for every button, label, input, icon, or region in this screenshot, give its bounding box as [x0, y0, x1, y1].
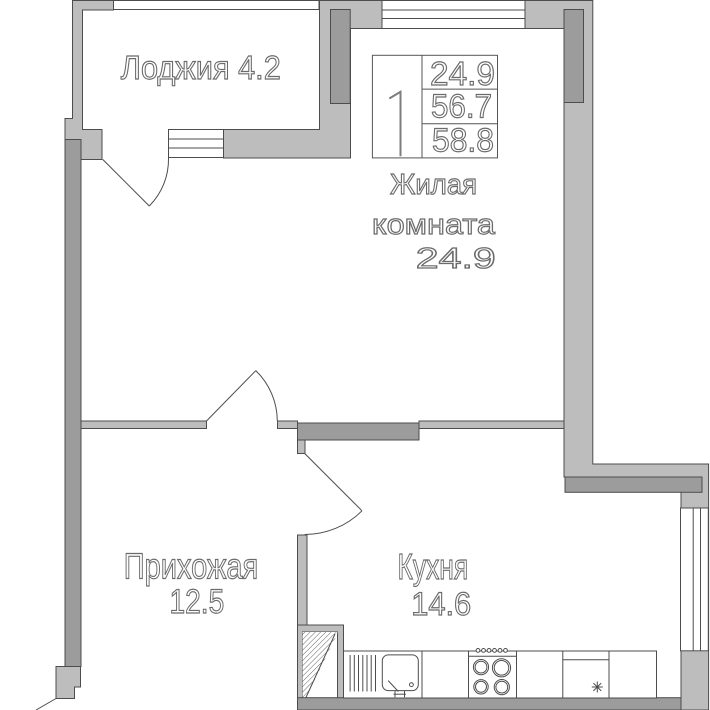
- svg-text:12.5: 12.5: [170, 583, 225, 621]
- svg-text:Прихожая: Прихожая: [124, 546, 259, 587]
- svg-text:Жилая: Жилая: [390, 169, 477, 201]
- svg-text:Кухня: Кухня: [398, 546, 469, 587]
- svg-text:58.8: 58.8: [432, 122, 494, 159]
- svg-text:комната: комната: [372, 209, 496, 241]
- svg-text:24.9: 24.9: [430, 55, 495, 92]
- svg-text:Лоджия 4.2: Лоджия 4.2: [121, 49, 281, 86]
- svg-text:56.7: 56.7: [431, 88, 492, 125]
- svg-text:14.6: 14.6: [411, 586, 471, 622]
- svg-text:24.9: 24.9: [416, 243, 496, 275]
